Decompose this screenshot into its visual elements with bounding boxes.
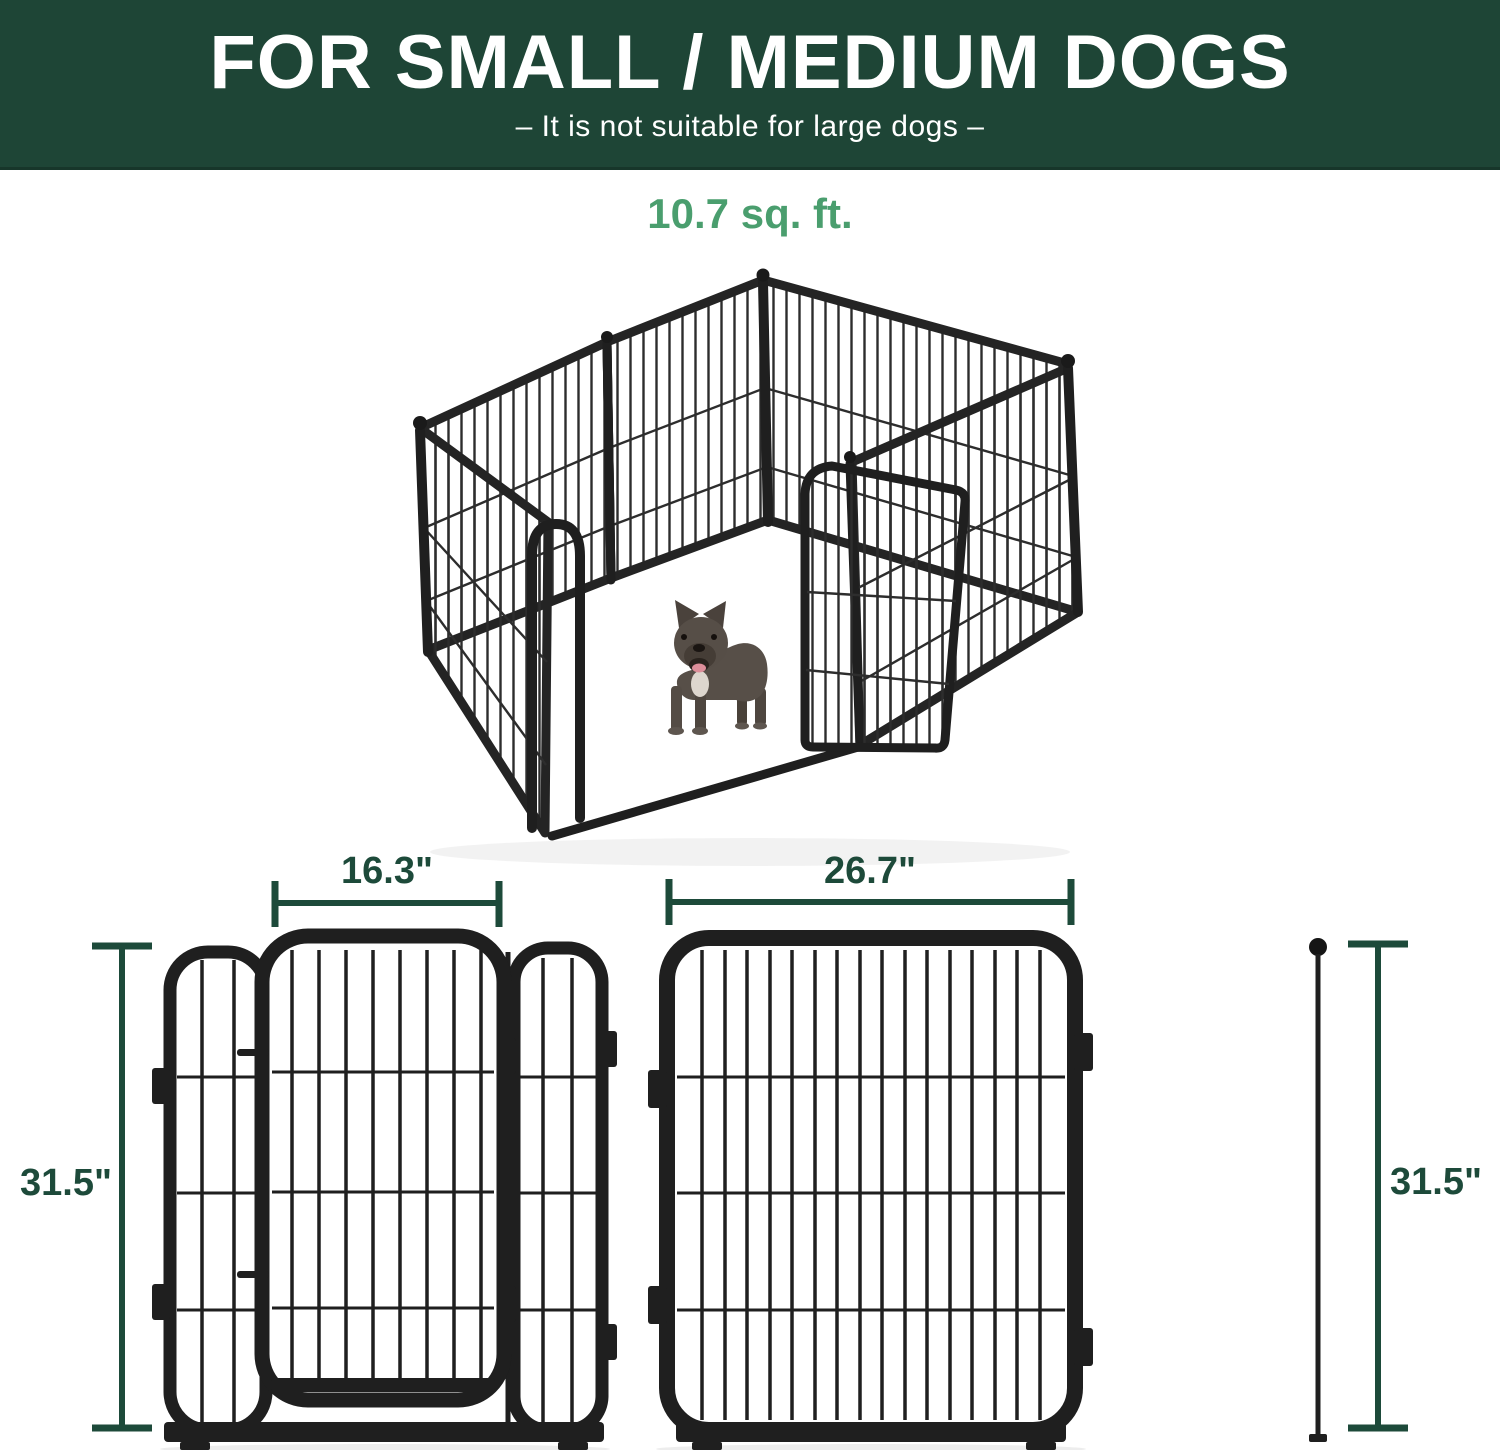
dimension-panel-width: 26.7" bbox=[800, 850, 940, 893]
hinge-pin bbox=[237, 1049, 269, 1056]
dimension-height-left: 31.5" bbox=[0, 1162, 112, 1205]
door-section-front-view bbox=[152, 936, 617, 1450]
playpen-illustrations bbox=[0, 0, 1500, 1450]
pen-shadow bbox=[430, 838, 1070, 866]
panel-back-right bbox=[607, 280, 768, 578]
open-door-panel bbox=[805, 466, 965, 748]
dimension-door-width: 16.3" bbox=[317, 850, 457, 893]
dimension-height-right: 31.5" bbox=[1390, 1161, 1500, 1204]
door-panel bbox=[262, 936, 504, 1400]
threshold-rail bbox=[552, 747, 858, 836]
dog-illustration bbox=[668, 600, 768, 735]
side-panel-left bbox=[170, 952, 266, 1430]
base-bar bbox=[164, 1422, 604, 1442]
corner-ball-icon bbox=[413, 416, 427, 430]
corner-ball-icon bbox=[844, 451, 856, 463]
corner-ball-icon bbox=[601, 331, 613, 343]
corner-ball-icon bbox=[1061, 354, 1075, 368]
product-infographic: FOR SMALL / MEDIUM DOGS – It is not suit… bbox=[0, 0, 1500, 1450]
side-panel-right bbox=[514, 948, 602, 1430]
corner-rod bbox=[1309, 938, 1327, 1442]
large-panel-front-view bbox=[648, 938, 1093, 1450]
corner-ball-icon bbox=[757, 269, 770, 282]
large-panel bbox=[667, 938, 1075, 1430]
hinge-pin bbox=[237, 1271, 269, 1278]
base-bar bbox=[676, 1422, 1066, 1442]
playpen-3d-illustration bbox=[413, 269, 1078, 867]
corner-ball-icon bbox=[1309, 938, 1327, 956]
